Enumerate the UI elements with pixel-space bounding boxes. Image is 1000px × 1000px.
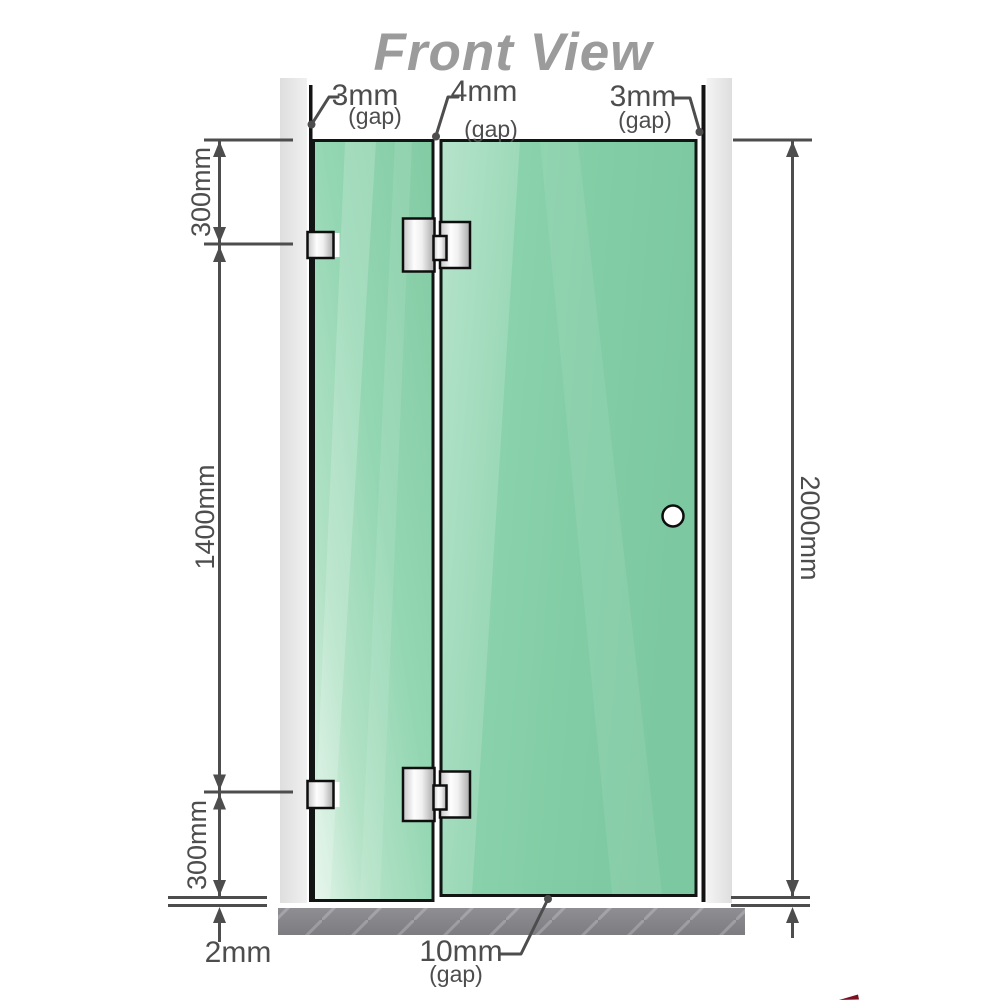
door-glass-panel: [441, 141, 696, 896]
arrow-up-right-top: [786, 141, 799, 157]
gap-right-label: (gap): [618, 107, 672, 133]
right-wall-edge-line: [702, 85, 706, 902]
gap-left-label: (gap): [348, 103, 402, 129]
leader-dot-left: [308, 121, 316, 129]
wall-bracket-top: [308, 232, 334, 258]
floor-hatching: [278, 908, 745, 935]
leader-dot-middle: [432, 133, 440, 141]
leader-dot-right: [696, 128, 704, 136]
watermark-fragment: [839, 995, 859, 1000]
diagram-canvas: Front View: [0, 0, 1000, 1000]
leader-dot-bottom: [544, 895, 552, 903]
dim-label-floor-gap: 2mm: [205, 936, 272, 969]
hinge-top: [403, 219, 470, 272]
left-dimension-chain: 300mm 1400mm 300mm 2mm: [168, 140, 293, 969]
arrow-down-right-bottom: [786, 880, 799, 896]
gap-middle-value: 4mm: [451, 75, 518, 108]
dim-label-overall-height: 2000mm: [795, 475, 825, 580]
hinge-top-knuckle: [434, 236, 447, 260]
floor: [278, 908, 745, 935]
dim-label-bottom-segment: 300mm: [182, 800, 212, 890]
hinge-top-fixed-plate: [403, 219, 435, 272]
left-wall: [280, 78, 307, 903]
door-knob: [663, 506, 684, 527]
hinge-bottom-fixed-plate: [403, 768, 435, 821]
dim-label-middle-segment: 1400mm: [190, 464, 220, 569]
arrow-down-2: [213, 775, 226, 791]
gap-callout-right: 3mm (gap): [610, 80, 704, 136]
hinge-bottom-knuckle: [434, 786, 447, 810]
arrow-up-2: [213, 246, 226, 262]
leader-line-right: [675, 98, 699, 129]
dim-label-top-segment: 300mm: [186, 147, 216, 237]
left-wall-edge-line: [309, 85, 313, 902]
gap-callout-left: 3mm (gap): [308, 79, 402, 129]
page-title: Front View: [374, 23, 656, 82]
gap-middle-label: (gap): [464, 116, 518, 142]
arrow-up-3: [213, 794, 226, 810]
right-wall: [707, 78, 733, 903]
hinge-bottom: [403, 768, 470, 821]
right-dimension: 2000mm: [731, 140, 825, 938]
wall-bracket-bottom: [308, 781, 334, 808]
arrow-up-4: [213, 907, 226, 923]
gap-callout-middle: 4mm (gap): [432, 75, 518, 142]
arrow-down-3: [213, 880, 226, 896]
gap-bottom-label: (gap): [429, 961, 483, 987]
front-view-diagram: Front View: [0, 0, 1000, 1000]
arrow-up-right-below: [786, 907, 799, 923]
